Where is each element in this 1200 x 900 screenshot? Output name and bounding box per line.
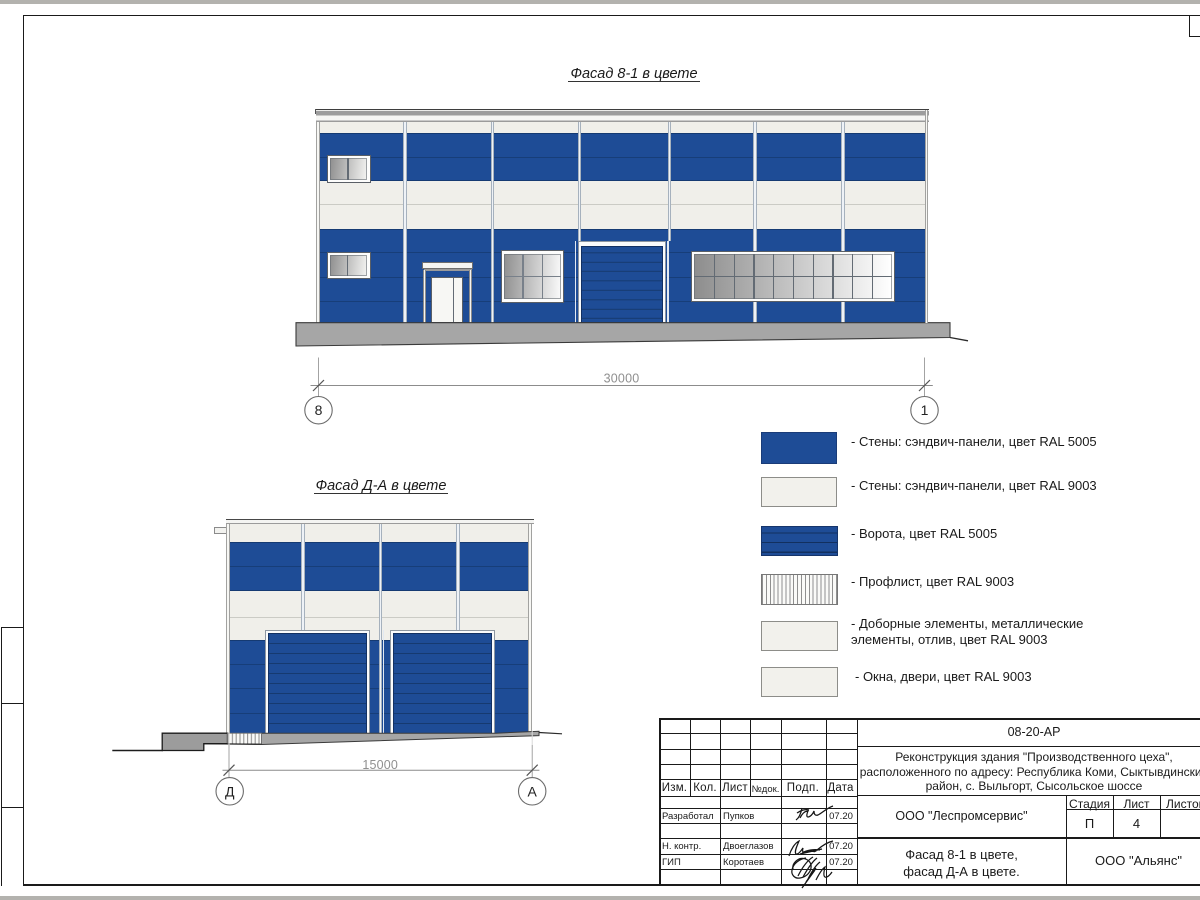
svg-text:1: 1 — [921, 402, 929, 418]
svg-text:А: А — [528, 783, 538, 799]
svg-text:8: 8 — [315, 402, 323, 418]
svg-text:15000: 15000 — [362, 758, 398, 772]
svg-text:30000: 30000 — [604, 372, 640, 386]
svg-text:Д: Д — [225, 783, 235, 799]
